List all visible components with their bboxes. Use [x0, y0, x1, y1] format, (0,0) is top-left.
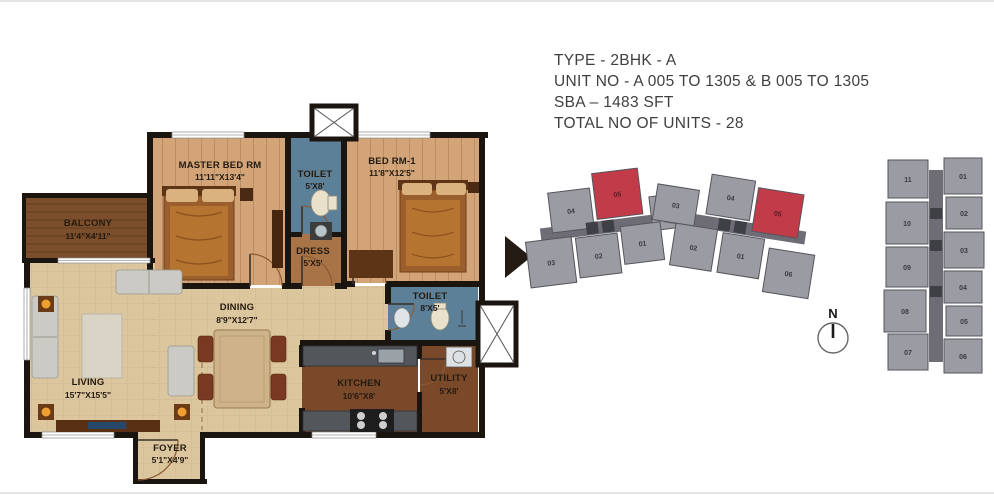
unit-number: 08 — [901, 309, 909, 316]
unit-info-block: TYPE - 2BHK - A UNIT NO - A 005 TO 1305 … — [554, 50, 869, 134]
unit-number: 10 — [903, 221, 911, 228]
room-dim-master-bed: 11'11"X13'4" — [195, 172, 245, 182]
utility-sink-icon — [446, 347, 472, 367]
unit-number: 04 — [959, 285, 967, 292]
unit-number: 09 — [903, 265, 911, 272]
unit-number: 06 — [784, 271, 793, 279]
unit-number: 05 — [613, 191, 622, 199]
room-dim-living: 15'7"X15'5" — [65, 390, 111, 400]
shaft-icon — [312, 106, 356, 139]
room-label-master-bed: MASTER BED RM — [179, 160, 262, 171]
room-dim-dress: 5'X5' — [303, 258, 322, 268]
unit-number: 02 — [595, 253, 604, 261]
unit-number: 03 — [671, 202, 680, 210]
room-dim-toilet-2: 8'X5' — [420, 303, 439, 313]
lift-core-icon — [930, 208, 942, 219]
room-label-living: LIVING — [72, 377, 105, 388]
keyplan-wing-b: 03 04 05 02 01 06 — [644, 166, 825, 299]
room-label-kitchen: KITCHEN — [337, 378, 381, 389]
unit-number: 01 — [736, 253, 745, 261]
unit-number: 11 — [904, 177, 912, 184]
page-top-border — [0, 0, 994, 2]
north-label: N — [828, 306, 837, 321]
room-label-utility: UTILITY — [430, 373, 468, 384]
lift-core-icon — [601, 219, 614, 232]
info-type-line: TYPE - 2BHK - A — [554, 50, 869, 71]
tower-corridor — [929, 170, 943, 362]
floor-texture — [300, 286, 388, 345]
unit-number: 02 — [689, 245, 698, 253]
shaft-icon — [478, 303, 516, 365]
floorplan-page: MASTER BED RM 11'11"X13'4" TOILET 5'X8' … — [0, 0, 994, 495]
room-label-dress: DRESS — [296, 246, 330, 257]
keyplan-wing-a: 04 05 06 03 02 01 — [518, 162, 700, 288]
lift-core-icon — [586, 221, 599, 234]
lamp-icon — [38, 296, 54, 312]
lamp-icon — [38, 404, 54, 420]
room-dim-utility: 5'X8' — [439, 386, 458, 396]
lift-core-icon — [930, 240, 942, 251]
north-compass: N — [818, 306, 848, 353]
unit-number: 01 — [959, 174, 967, 181]
info-unit-no-line: UNIT NO - A 005 TO 1305 & B 005 TO 1305 — [554, 71, 869, 92]
room-label-foyer: FOYER — [153, 443, 187, 454]
unit-number: 06 — [959, 354, 967, 361]
lamp-icon — [174, 404, 190, 420]
lift-core-icon — [733, 220, 747, 234]
unit-number: 05 — [773, 210, 782, 218]
unit-number: 01 — [638, 241, 647, 249]
lift-core-icon — [718, 218, 732, 232]
room-label-balcony: BALCONY — [64, 218, 113, 229]
room-dim-foyer: 5'1"X4'9" — [152, 455, 189, 465]
room-dim-bed-1: 11'8"X12'5" — [369, 168, 415, 178]
unit-number: 04 — [567, 208, 576, 216]
room-dim-balcony: 11'4"X4'11" — [65, 231, 110, 241]
unit-number: 03 — [547, 260, 556, 268]
unit-number: 04 — [726, 195, 735, 203]
room-dim-dining: 8'9"X12'7" — [216, 315, 257, 325]
room-label-dining: DINING — [220, 302, 254, 313]
unit-number: 03 — [960, 248, 968, 255]
room-label-toilet-2: TOILET — [413, 291, 448, 302]
unit-number: 02 — [960, 211, 968, 218]
room-label-toilet-1: TOILET — [298, 169, 333, 180]
room-label-bed-1: BED RM-1 — [368, 156, 416, 167]
unit-number: 07 — [904, 350, 912, 357]
room-dim-kitchen: 10'6"X8' — [343, 391, 376, 401]
keyplan-tower: 11 10 09 08 07 01 02 03 04 05 06 — [884, 158, 984, 373]
unit-number: 05 — [960, 319, 968, 326]
page-bottom-border — [0, 492, 994, 494]
info-sba-line: SBA – 1483 SFT — [554, 92, 869, 113]
info-total-units-line: TOTAL NO OF UNITS - 28 — [554, 113, 869, 134]
lift-core-icon — [930, 286, 942, 297]
room-dim-toilet-1: 5'X8' — [305, 181, 324, 191]
